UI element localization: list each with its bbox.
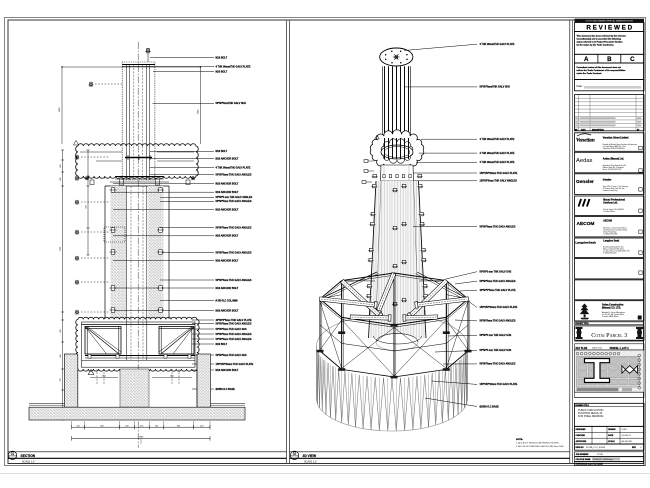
svg-text:M10 BOLT: M10 BOLT xyxy=(216,343,228,346)
svg-text:50*50*5mm THK GALV ANGLES: 50*50*5mm THK GALV ANGLES xyxy=(216,251,252,254)
svg-text:Kowloon, Hong Kong: Kowloon, Hong Kong xyxy=(603,190,618,192)
svg-text:50*50*5mm THK GALV ANGLES: 50*50*5mm THK GALV ANGLES xyxy=(480,225,516,228)
svg-text:NOTE:: NOTE: xyxy=(516,439,523,441)
svg-text:Cotai Parcel 3: Cotai Parcel 3 xyxy=(591,332,627,339)
svg-text:Services Ltd.: Services Ltd. xyxy=(603,202,618,205)
svg-text:R E V I E W E D: R E V I E W E D xyxy=(586,25,632,32)
svg-text:APPROVED: APPROVED xyxy=(576,440,587,443)
svg-text:M10 ANCHOR BOLT: M10 ANCHOR BOLT xyxy=(216,157,239,160)
svg-text:DATE: DATE xyxy=(608,434,614,437)
svg-text:50*50*5mm THK GALV ANGLES: 50*50*5mm THK GALV ANGLES xyxy=(216,200,252,203)
svg-text:DRAWN: DRAWN xyxy=(608,428,616,431)
svg-text:Date :: Date : xyxy=(577,84,584,88)
svg-text:50*50*5mm THK GALV ANGLES: 50*50*5mm THK GALV ANGLES xyxy=(216,174,252,177)
svg-text:3D VIEW: 3D VIEW xyxy=(303,454,317,458)
svg-text:M10 ANCHOR BOLT: M10 ANCHOR BOLT xyxy=(216,235,239,238)
svg-text:SCALE 1:5: SCALE 1:5 xyxy=(22,461,35,464)
svg-text:450: 450 xyxy=(140,425,143,427)
svg-text:Macau Professional: Macau Professional xyxy=(603,200,625,202)
svg-text:Yadea Construction: Yadea Construction xyxy=(602,304,624,307)
svg-text:Aedas: Aedas xyxy=(576,158,593,164)
svg-text:Langdon Seah: Langdon Seah xyxy=(603,241,619,243)
svg-text:500: 500 xyxy=(85,205,87,208)
svg-text:M10 ANCHOR BOLT: M10 ANCHOR BOLT xyxy=(216,287,239,290)
svg-text:# 350 R.C COLUMN: # 350 R.C COLUMN xyxy=(216,299,238,302)
svg-text:B: B xyxy=(607,56,612,63)
svg-text:AECOM: AECOM xyxy=(577,221,595,227)
svg-text:Ø2500 R.C BASE: Ø2500 R.C BASE xyxy=(216,388,236,391)
svg-text:4 THK 90mmTHK GALV PLATE: 4 THK 90mmTHK GALV PLATE xyxy=(216,167,251,170)
svg-text:CAD FILE NAME: CAD FILE NAME xyxy=(576,458,592,461)
svg-text:JOB NUMBER: JOB NUMBER xyxy=(576,454,589,456)
svg-text:50*50*5mm THK GALV ANGLES: 50*50*5mm THK GALV ANGLES xyxy=(216,338,252,341)
svg-text:M10 BOLT: M10 BOLT xyxy=(216,150,228,153)
svg-text:M10 ANCHOR BOLT: M10 ANCHOR BOLT xyxy=(216,191,239,194)
svg-text:5153B_PC_85093.dwg: 5153B_PC_85093.dwg xyxy=(593,459,612,461)
svg-text:150*150*10mm THK GALV PLATE: 150*150*10mm THK GALV PLATE xyxy=(480,383,518,386)
svg-text:FOR STEEL DRAWING: FOR STEEL DRAWING xyxy=(578,415,603,418)
svg-text:Aedas (Macau) Ltd.: Aedas (Macau) Ltd. xyxy=(603,157,624,160)
svg-text:50*50*5mm THK GALV SHS: 50*50*5mm THK GALV SHS xyxy=(216,354,247,357)
svg-text:200: 200 xyxy=(77,425,80,427)
svg-text:200: 200 xyxy=(200,425,203,427)
svg-text:50*50*5 mm THK GALV ANGLES: 50*50*5 mm THK GALV ANGLES xyxy=(216,196,253,199)
svg-text:150*50*5mm THK GALV ANGLES: 150*50*5mm THK GALV ANGLES xyxy=(480,180,518,183)
svg-text:Ø2500 R.C BASE: Ø2500 R.C BASE xyxy=(480,405,500,408)
svg-text:M10 ANCHOR BOLT: M10 ANCHOR BOLT xyxy=(216,259,239,262)
svg-text:under the Trade Contract.: under the Trade Contract. xyxy=(577,72,603,75)
svg-text:4 THK 90mmTHK GALV PLATE: 4 THK 90mmTHK GALV PLATE xyxy=(216,65,251,68)
svg-text:LangdonSeah: LangdonSeah xyxy=(575,241,596,245)
svg-text:A: A xyxy=(584,56,589,63)
svg-text:M10 ANCHOR BOLT: M10 ANCHOR BOLT xyxy=(216,209,239,212)
svg-text:SECTION: SECTION xyxy=(21,454,36,458)
svg-text:02: 02 xyxy=(293,452,297,456)
svg-text:50*50*5mm THK GALV ANGLES: 50*50*5mm THK GALV ANGLES xyxy=(216,333,252,336)
svg-text:50*50*5mm THK GALV ANGLES: 50*50*5mm THK GALV ANGLES xyxy=(216,279,252,282)
svg-text:50*50*5 mm THK GALV SHS: 50*50*5 mm THK GALV SHS xyxy=(480,349,512,352)
svg-text:50*50*5mmTHK GALV SHS: 50*50*5mmTHK GALV SHS xyxy=(216,102,247,105)
svg-text:DESCRIPTION: DESCRIPTION xyxy=(592,129,604,131)
svg-text:600: 600 xyxy=(60,164,62,167)
svg-text:Telephone (853) 8118 2888 Fa: Telephone (853) 8118 2888 Fax xyxy=(603,148,625,150)
svg-text:M10 BOLT: M10 BOLT xyxy=(216,57,228,60)
svg-text:Gensler: Gensler xyxy=(576,179,594,185)
svg-text:DWG NO: DWG NO xyxy=(576,447,585,449)
svg-text:01: 01 xyxy=(11,452,15,456)
svg-text:DESIGNED: DESIGNED xyxy=(576,429,587,431)
svg-text:4 THK 90mmTHK GALV PLATE: 4 THK 90mmTHK GALV PLATE xyxy=(480,138,515,141)
svg-text:5.4 for action by the Trade Co: 5.4 for action by the Trade Contractor. xyxy=(577,43,615,46)
svg-text:(Macau) CO. LTD.: (Macau) CO. LTD. xyxy=(602,308,621,310)
svg-text:4 THK 90mmTHK GALV PLATE: 4 THK 90mmTHK GALV PLATE xyxy=(480,43,515,46)
svg-text:status referred to in Project: status referred to in Project Procedure … xyxy=(577,40,624,43)
svg-text:50*50*5mm THK GALV ANGLES: 50*50*5mm THK GALV ANGLES xyxy=(216,322,252,325)
svg-text:450: 450 xyxy=(60,177,62,180)
svg-text:450: 450 xyxy=(60,354,62,357)
svg-text:750: 750 xyxy=(60,378,62,381)
svg-text:AECOM: AECOM xyxy=(603,220,612,223)
svg-text:50*50*5 mm THK GALV SHS: 50*50*5 mm THK GALV SHS xyxy=(480,334,512,337)
svg-text:5153B: 5153B xyxy=(597,454,603,456)
svg-text:Consultants(s) and is accorded: Consultants(s) and is accorded the follo… xyxy=(577,37,622,40)
svg-text:Macau Tel (853) 2833 1811: Macau Tel (853) 2833 1811 xyxy=(603,169,622,171)
svg-text:600: 600 xyxy=(60,329,62,332)
svg-text:150*150*10mm THK GALV PLATE: 150*150*10mm THK GALV PLATE xyxy=(480,306,518,309)
svg-text:CHECKED: CHECKED xyxy=(576,435,586,437)
svg-text:50*50*5mm THK GALV ANGLES: 50*50*5mm THK GALV ANGLES xyxy=(216,226,252,229)
svg-text:M10 ANCHOR BOLT: M10 ANCHOR BOLT xyxy=(216,309,239,312)
svg-text:4 THK 90mmTHK GALV PLATE: 4 THK 90mmTHK GALV PLATE xyxy=(480,152,515,155)
svg-text:M10 BOLT: M10 BOLT xyxy=(216,70,228,73)
svg-text:200: 200 xyxy=(125,425,128,427)
svg-text:3700: 3700 xyxy=(60,247,62,251)
svg-text:C: C xyxy=(630,56,635,63)
svg-text:864: 864 xyxy=(101,425,104,427)
svg-text:50*50*5 mm THK GALV SHS: 50*50*5 mm THK GALV SHS xyxy=(480,271,512,274)
svg-text:AS SHOWN: AS SHOWN xyxy=(622,440,633,443)
svg-text:4 THK 90mmTHK GALV PLATE: 4 THK 90mmTHK GALV PLATE xyxy=(480,161,515,164)
svg-text:Venetian Orient Limited: Venetian Orient Limited xyxy=(603,136,629,139)
svg-text:M10 ANCHOR BOLT: M10 ANCHOR BOLT xyxy=(216,369,239,372)
svg-text:2. ALL FILLET WELDED SHOULD BE: 2. ALL FILLET WELDED SHOULD BE 3mm THK. xyxy=(516,445,564,448)
svg-text:50*50*5mm THK GALV SHS: 50*50*5mm THK GALV SHS xyxy=(216,328,247,331)
svg-text:14-JUN-15: 14-JUN-15 xyxy=(622,435,631,437)
svg-text:200: 200 xyxy=(155,425,158,427)
svg-text:Venetian: Venetian xyxy=(576,138,595,144)
svg-text:This document has been reviewe: This document has been reviewed by the r… xyxy=(577,34,626,37)
svg-text:50*50*5mm THK GALV ANGLES: 50*50*5mm THK GALV ANGLES xyxy=(480,320,516,323)
svg-text:LUND: LUND xyxy=(622,429,628,431)
svg-text:40*50*5*5mm THK GALV PLATE: 40*50*5*5mm THK GALV PLATE xyxy=(480,289,516,292)
svg-text:M10 ANCHOR BOLT: M10 ANCHOR BOLT xyxy=(216,182,239,185)
svg-text:Gensler: Gensler xyxy=(603,179,612,181)
svg-text:150*150*10mm THK GALV PLATE: 150*150*10mm THK GALV PLATE xyxy=(480,172,518,175)
svg-text:relieve the Trade Contractor o: relieve the Trade Contractor of its resp… xyxy=(577,69,627,72)
svg-text:REFERENCE CAD FILE NAME: REFERENCE CAD FILE NAME xyxy=(576,463,604,466)
svg-text:50*50*5mm THK GALV ANGLES: 50*50*5mm THK GALV ANGLES xyxy=(480,280,516,283)
svg-text:Tel: (852) 3922 9000: Tel: (852) 3922 9000 xyxy=(603,233,617,235)
svg-text:F: (853) 2833 1532: F: (853) 2833 1532 xyxy=(603,253,616,255)
svg-text:PROJECT TITLE: PROJECT TITLE xyxy=(575,323,589,325)
svg-text:864: 864 xyxy=(177,425,180,427)
svg-text:PARCEL 1, LOT 2: PARCEL 1, LOT 2 xyxy=(610,347,630,350)
svg-text:SCALE 1:5: SCALE 1:5 xyxy=(304,461,317,464)
svg-text:50*50*5mmTHK GALV SHS: 50*50*5mmTHK GALV SHS xyxy=(480,86,511,89)
svg-text:50*50*5mm THK GALV ANGLES: 50*50*5mm THK GALV ANGLES xyxy=(480,363,516,366)
svg-text:KEY PLAN: KEY PLAN xyxy=(576,347,588,350)
svg-text:DRAWING TITLE: DRAWING TITLE xyxy=(575,404,589,407)
svg-text:SCALE: SCALE xyxy=(608,440,615,443)
svg-text:Consultant review of this docu: Consultant review of this document does … xyxy=(577,66,622,69)
svg-text:1. ALL BOLT SHOULD BE FIXING O: 1. ALL BOLT SHOULD BE FIXING ON SITE. xyxy=(516,442,560,445)
svg-text:5153B_PC2_85093: 5153B_PC2_85093 xyxy=(586,447,606,449)
svg-text:150*150*10mm THK GALV PLATE: 150*150*10mm THK GALV PLATE xyxy=(216,363,254,366)
